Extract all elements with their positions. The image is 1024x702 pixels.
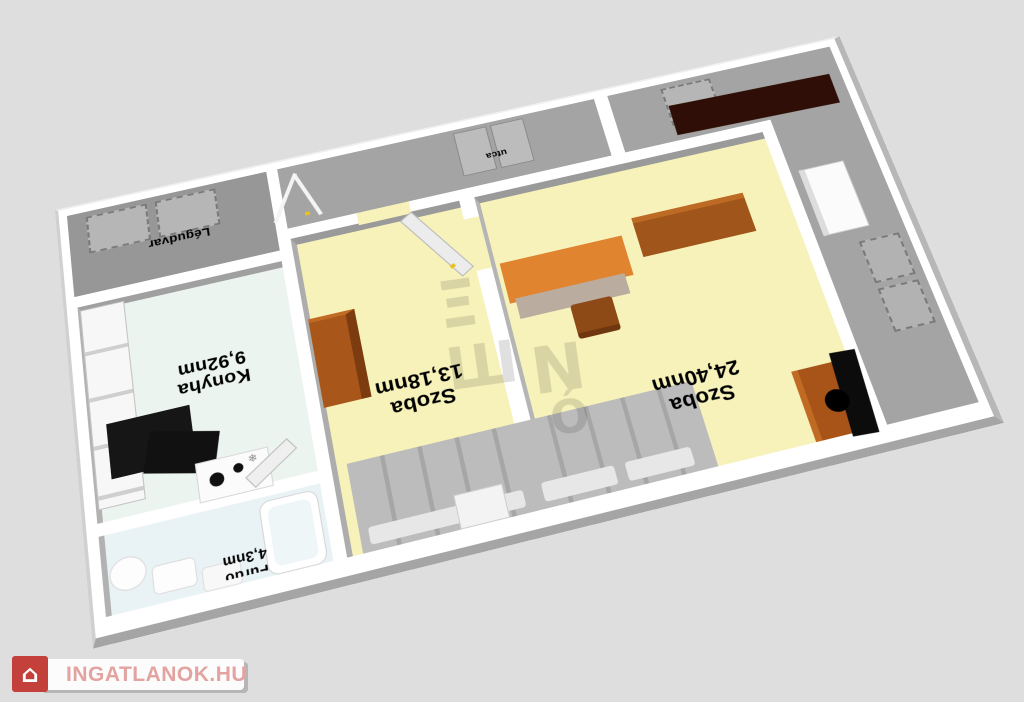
watermark-glyph: Ш: [442, 327, 522, 404]
house-icon: ⌂: [21, 660, 38, 688]
logo-text: INGATLANOK.HU: [38, 659, 244, 690]
stove-burner-icon: [209, 471, 225, 488]
screenshot-canvas: Légudvar utca ❄ Konyha 9,92nm: [0, 0, 1024, 702]
watermark-glyph: Ó: [547, 387, 593, 446]
ingatlanok-watermark: Ξ Ш N Ó: [433, 246, 638, 459]
logo-house-box: ⌂: [12, 656, 48, 692]
bed-pillow: [541, 465, 619, 502]
stove-burner-icon: [233, 462, 244, 474]
logo-pill: INGATLANOK.HU: [38, 659, 244, 690]
fridge-snowflake-icon: ❄: [247, 452, 258, 466]
bed-pillow: [624, 446, 695, 481]
